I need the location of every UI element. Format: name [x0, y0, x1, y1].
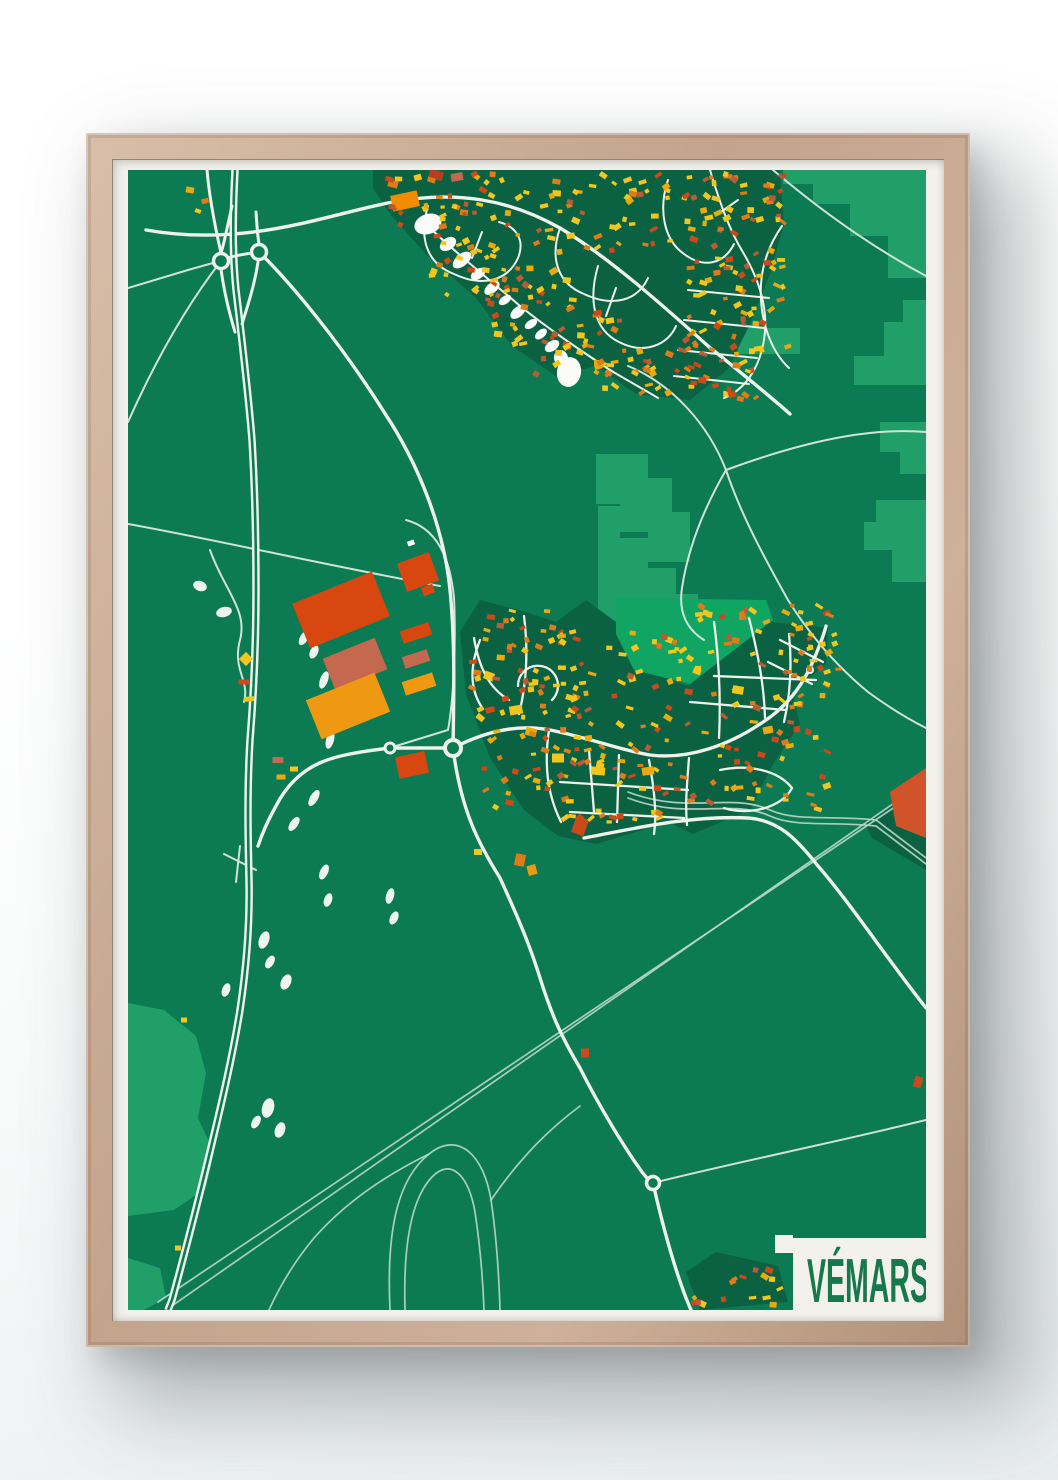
house	[606, 820, 611, 823]
house	[723, 266, 730, 270]
house	[569, 297, 577, 302]
label-box-step	[775, 1235, 793, 1253]
house	[395, 177, 402, 182]
house	[563, 277, 571, 283]
house	[667, 239, 673, 242]
house	[695, 612, 703, 617]
field-patch	[738, 328, 800, 354]
house	[776, 214, 781, 218]
building	[514, 853, 526, 867]
house	[503, 618, 508, 623]
roundabout	[385, 743, 395, 753]
house	[734, 351, 739, 356]
house	[583, 690, 589, 696]
house	[617, 814, 624, 820]
house	[749, 348, 755, 354]
house	[783, 798, 789, 801]
house	[505, 210, 512, 216]
house	[536, 785, 540, 790]
building	[239, 680, 250, 685]
map-artwork	[128, 170, 926, 1310]
house	[487, 614, 496, 620]
house	[555, 350, 562, 356]
house	[560, 727, 566, 733]
building	[474, 849, 482, 855]
vemars-city-map: VÉMARS	[128, 170, 926, 1310]
house	[448, 193, 453, 199]
house	[769, 195, 776, 201]
house	[721, 1296, 727, 1302]
house	[652, 639, 657, 645]
house	[725, 256, 733, 262]
building	[181, 1018, 187, 1023]
house	[558, 210, 563, 214]
house	[577, 332, 585, 339]
house	[443, 272, 448, 277]
house	[718, 754, 722, 757]
house	[609, 224, 616, 230]
house	[651, 214, 659, 219]
building	[244, 696, 254, 702]
poster-title: VÉMARS	[807, 1247, 926, 1310]
house	[472, 210, 477, 215]
house	[752, 321, 759, 326]
house	[735, 285, 743, 292]
house	[751, 306, 756, 310]
house	[611, 693, 617, 698]
house	[637, 191, 644, 197]
house	[515, 233, 520, 237]
house	[539, 684, 544, 688]
house	[686, 265, 694, 270]
house	[674, 787, 681, 792]
house	[665, 738, 669, 742]
house	[439, 217, 445, 222]
house	[726, 386, 731, 392]
house	[561, 682, 566, 686]
house	[756, 274, 762, 278]
house	[807, 666, 812, 672]
map-title-label: VÉMARS	[775, 1235, 926, 1310]
house	[544, 609, 550, 613]
house	[734, 759, 740, 765]
house	[585, 735, 593, 741]
house	[764, 260, 771, 266]
roundabout	[445, 740, 461, 756]
house	[792, 673, 798, 678]
house	[724, 642, 732, 646]
house	[813, 735, 819, 740]
house	[526, 266, 533, 272]
house	[770, 1302, 777, 1308]
house	[489, 171, 495, 177]
house	[690, 381, 697, 386]
house	[557, 249, 563, 255]
house	[656, 643, 662, 649]
house	[665, 195, 670, 200]
house	[528, 686, 535, 692]
house	[606, 645, 612, 650]
house	[596, 809, 602, 813]
building	[175, 1246, 181, 1251]
house	[734, 748, 739, 752]
house	[835, 668, 841, 671]
house	[763, 184, 770, 188]
house	[696, 1299, 701, 1305]
house	[602, 385, 608, 391]
house	[702, 221, 707, 227]
house	[617, 318, 622, 322]
house	[686, 175, 692, 179]
house	[695, 259, 700, 264]
house	[752, 1267, 758, 1273]
house	[819, 641, 826, 647]
house	[668, 762, 673, 766]
building	[273, 757, 284, 763]
house	[654, 785, 661, 791]
house	[540, 703, 546, 708]
house	[467, 267, 475, 272]
building	[642, 766, 655, 776]
house	[482, 766, 487, 771]
house	[820, 693, 826, 698]
house	[629, 630, 636, 635]
house	[544, 786, 550, 791]
house	[783, 793, 789, 798]
house	[724, 786, 728, 791]
house	[494, 331, 503, 338]
house	[622, 348, 626, 353]
house	[747, 207, 754, 213]
house	[496, 654, 505, 660]
house	[629, 222, 636, 226]
house	[496, 623, 504, 629]
house	[750, 701, 756, 706]
house	[553, 684, 560, 688]
house	[637, 764, 643, 767]
house	[778, 649, 783, 655]
house	[574, 747, 579, 751]
house	[531, 753, 536, 756]
house	[566, 799, 574, 803]
house	[529, 682, 536, 686]
house	[540, 629, 546, 633]
house	[756, 787, 761, 793]
roundabout	[214, 254, 229, 269]
house	[777, 258, 785, 262]
house	[676, 677, 681, 682]
house	[609, 247, 615, 253]
house	[684, 218, 690, 224]
wall-background: VÉMARS	[0, 0, 1058, 1480]
building	[277, 775, 286, 780]
house	[541, 356, 547, 362]
building	[552, 754, 564, 763]
house	[617, 759, 625, 763]
house	[790, 604, 795, 608]
house	[511, 288, 518, 293]
roundabout	[647, 1177, 660, 1190]
house	[740, 316, 746, 322]
house	[712, 180, 717, 186]
building	[581, 1049, 589, 1058]
building	[290, 767, 298, 772]
house	[558, 665, 566, 670]
house	[606, 363, 614, 367]
house	[810, 659, 818, 662]
poster-mat: VÉMARS	[112, 159, 944, 1321]
house	[639, 786, 646, 791]
house	[441, 241, 447, 246]
roundabout	[252, 245, 267, 260]
house	[672, 639, 677, 645]
house	[559, 634, 566, 638]
house	[440, 205, 444, 208]
house	[793, 726, 800, 733]
house	[521, 715, 525, 720]
house	[769, 1276, 776, 1282]
house	[528, 294, 534, 300]
poster-frame: VÉMARS	[86, 133, 970, 1347]
